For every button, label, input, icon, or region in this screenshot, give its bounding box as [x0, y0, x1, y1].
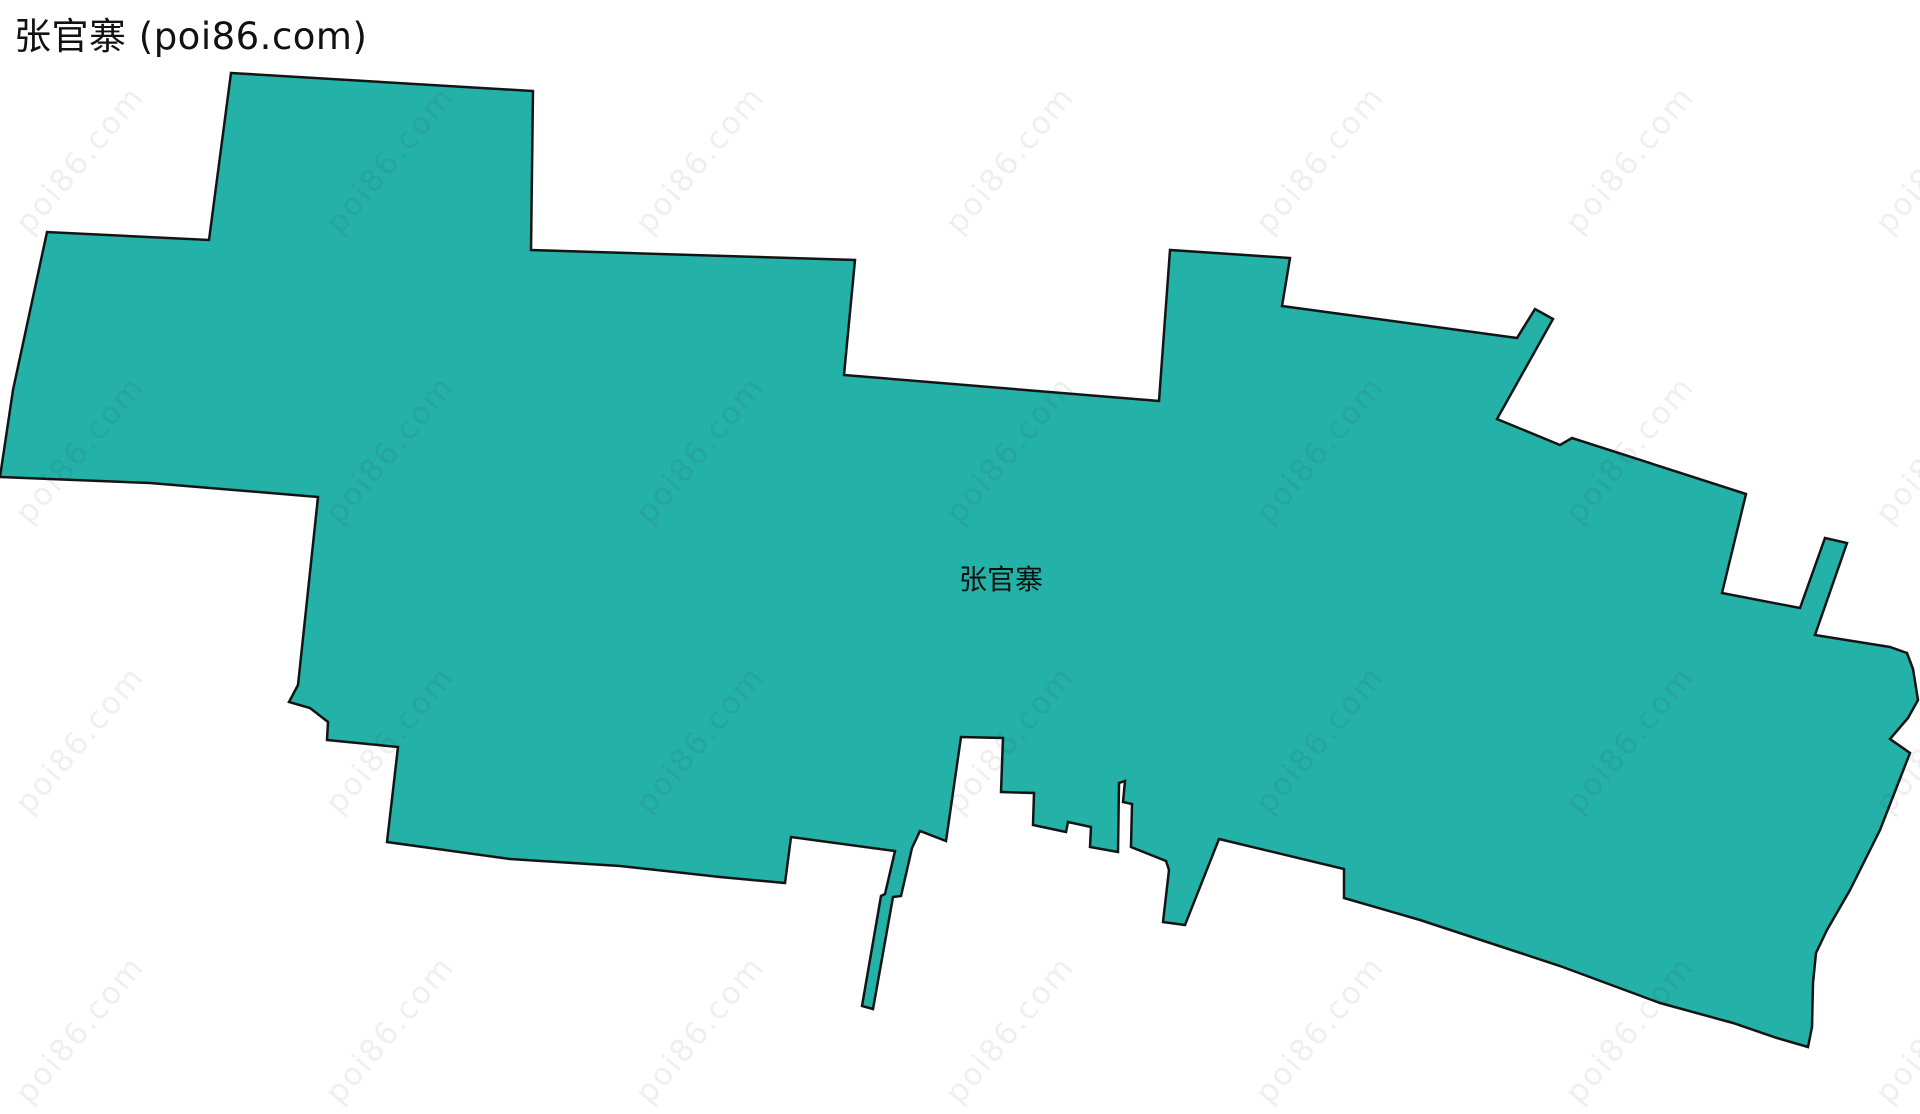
map-canvas	[0, 0, 1920, 1114]
region-label: 张官寨	[959, 558, 1043, 598]
page-title: 张官寨 (poi86.com)	[14, 6, 367, 60]
map-page: poi86.compoi86.compoi86.compoi86.compoi8…	[0, 0, 1920, 1114]
